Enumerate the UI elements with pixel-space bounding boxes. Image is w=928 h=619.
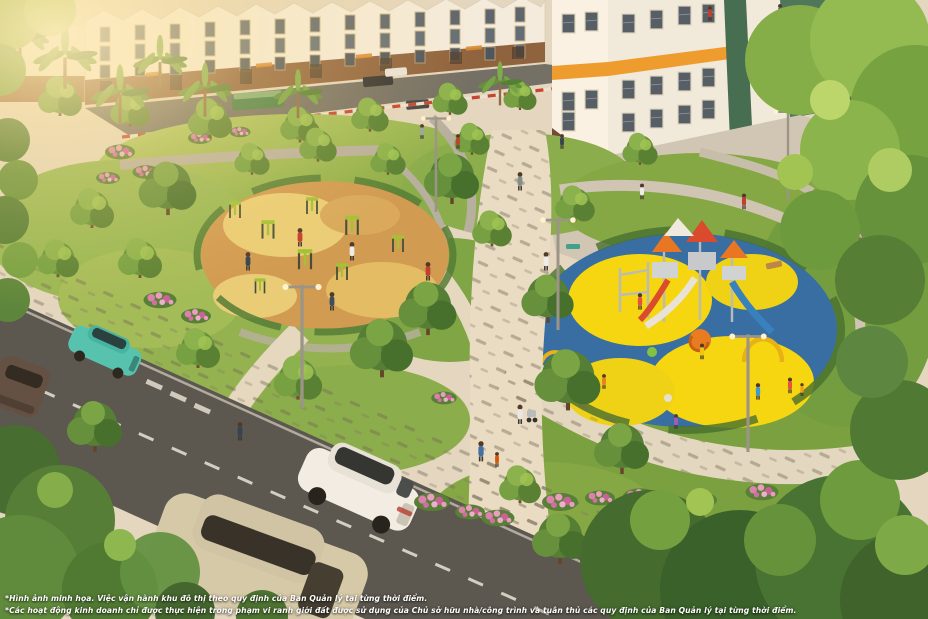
bench-teal bbox=[566, 244, 580, 249]
scene-canvas bbox=[0, 0, 928, 619]
disclaimer-line-2: *Các hoạt động kinh doanh chỉ được thực … bbox=[5, 605, 685, 616]
disclaimer-line-1: *Hình ảnh minh họa. Việc vận hành khu đô… bbox=[5, 593, 685, 604]
render-image: *Hình ảnh minh họa. Việc vận hành khu đô… bbox=[0, 0, 928, 619]
green-shuttle bbox=[231, 90, 284, 111]
disclaimer-text: *Hình ảnh minh họa. Việc vận hành khu đô… bbox=[5, 593, 685, 616]
